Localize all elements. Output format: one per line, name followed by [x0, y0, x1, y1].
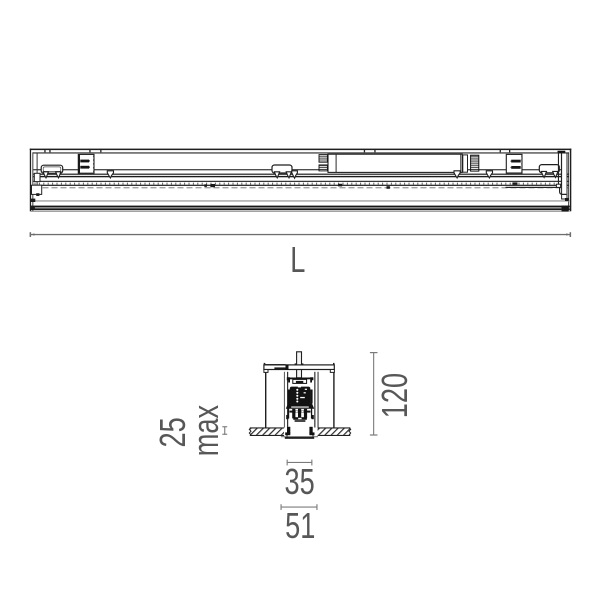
svg-text:120: 120 — [374, 373, 415, 418]
svg-text:L: L — [290, 239, 305, 280]
svg-text:51: 51 — [285, 505, 315, 546]
svg-text:max: max — [185, 405, 226, 456]
svg-text:35: 35 — [284, 461, 314, 502]
